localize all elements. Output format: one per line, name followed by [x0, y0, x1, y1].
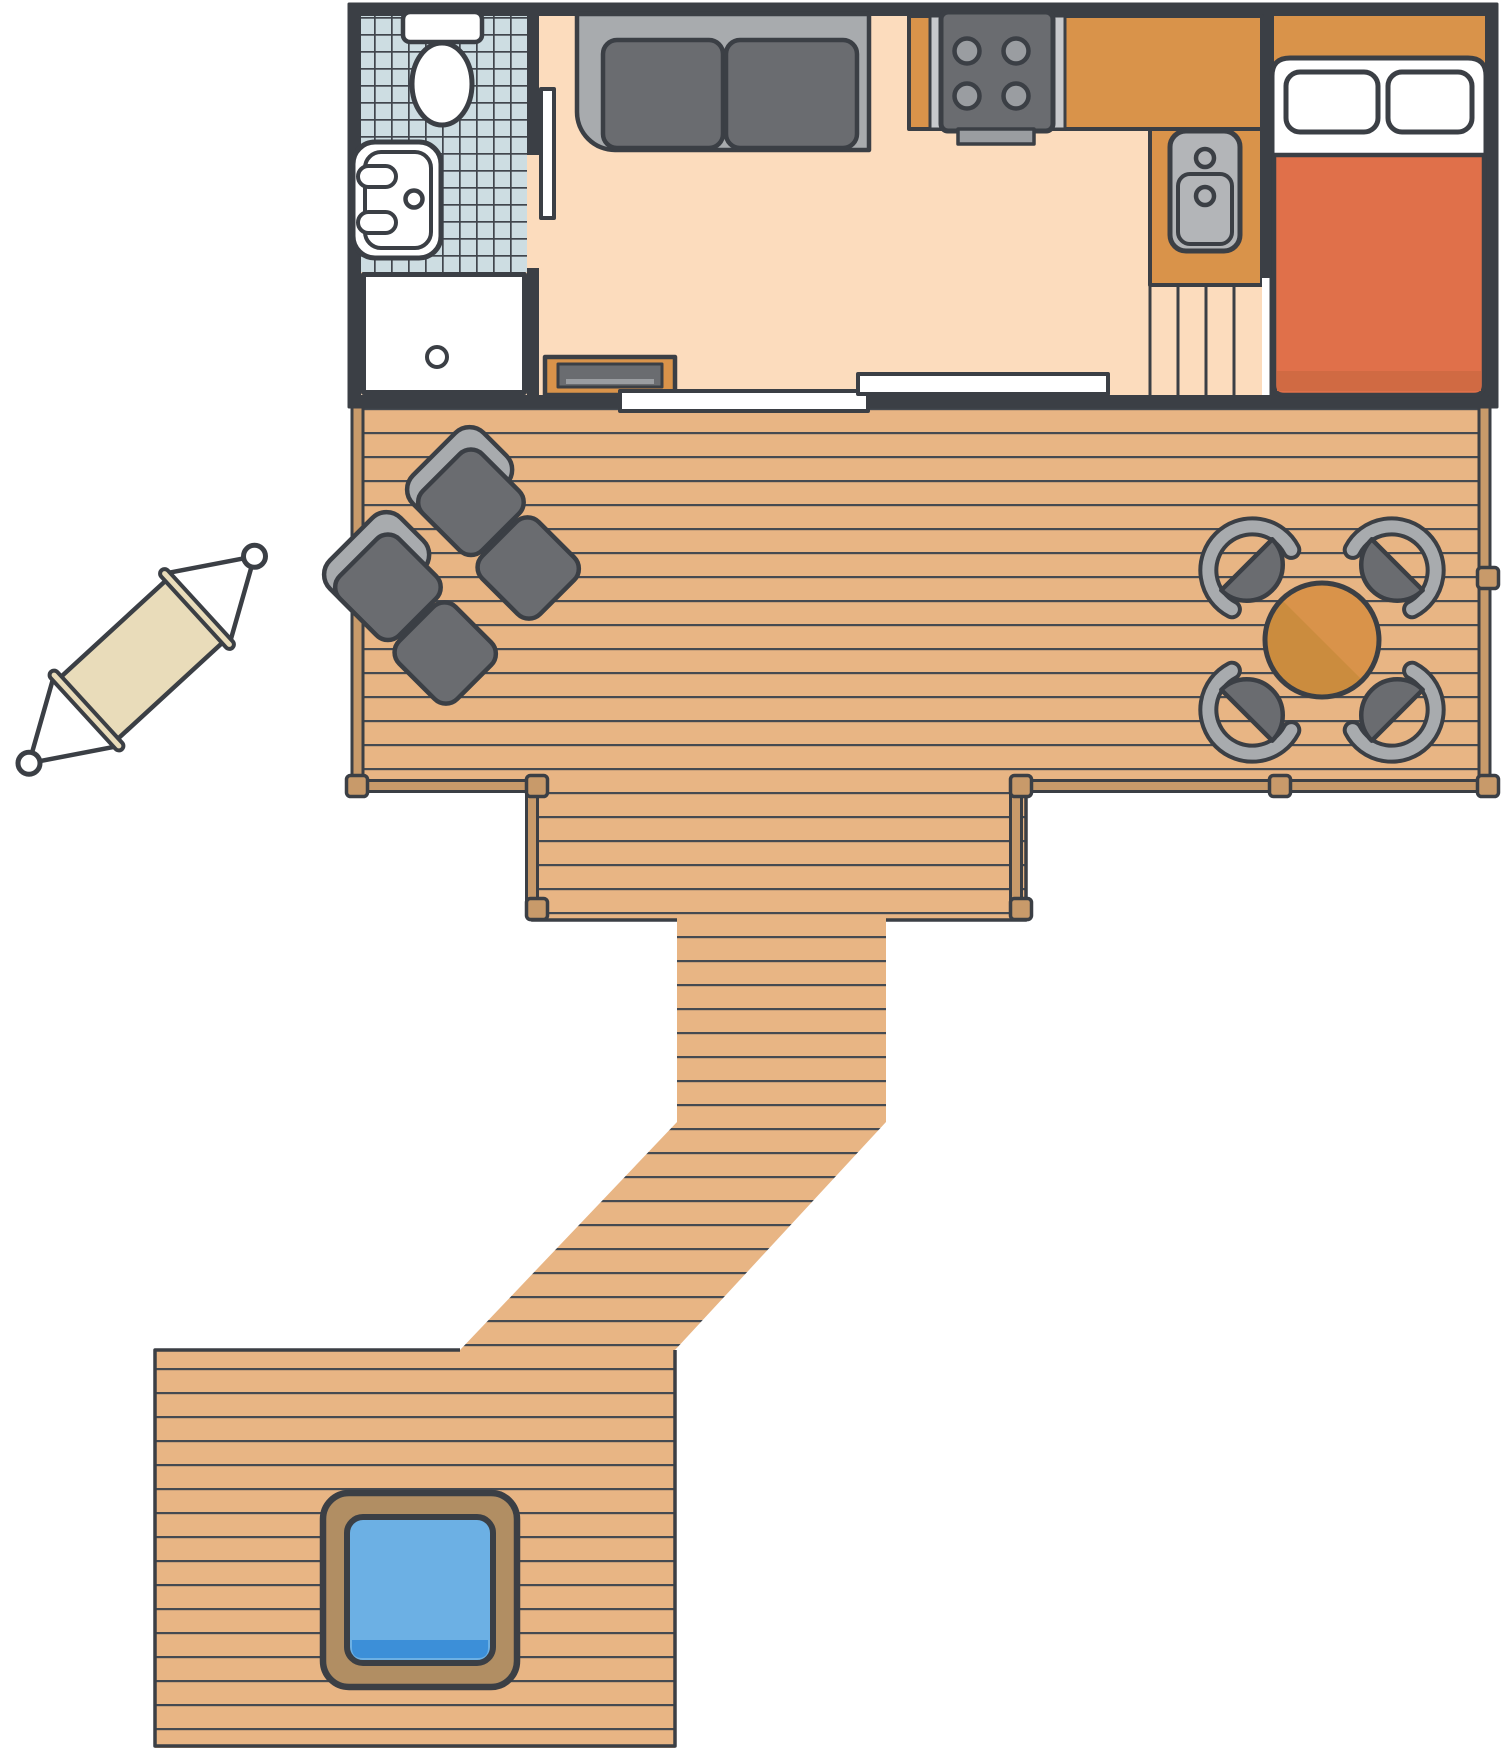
railing-landing-right	[1011, 786, 1022, 912]
media-cabinet-detail	[566, 379, 654, 384]
sink-soap-well	[358, 212, 396, 233]
sliding-door-panel	[620, 391, 868, 411]
deck-post	[527, 899, 548, 920]
floor-plan-canvas	[0, 0, 1512, 1748]
railing-bottom-right	[1021, 781, 1489, 792]
kitchen-sink	[1170, 131, 1240, 251]
stove-burner	[955, 39, 980, 64]
bathroom-sink	[353, 142, 441, 258]
sofa-cushion	[603, 40, 723, 148]
bathroom	[353, 12, 554, 395]
railing-bottom-left	[352, 781, 537, 792]
sink-soap-well	[358, 166, 396, 187]
bathroom-door-leaf	[541, 89, 554, 218]
kitchen-sink-drain	[1196, 187, 1214, 205]
toilet-tank	[403, 12, 482, 42]
stove-burner	[1004, 39, 1029, 64]
hot-tub-water-deep	[352, 1640, 488, 1658]
oven-handle	[958, 129, 1034, 144]
kitchen-sink-basin	[1178, 174, 1232, 244]
bed-blanket	[1274, 155, 1484, 395]
bed-blanket-fold	[1277, 371, 1481, 391]
sliding-door-panel	[858, 374, 1108, 394]
shower	[364, 275, 525, 393]
bed-pillow	[1388, 72, 1472, 132]
stove	[941, 12, 1053, 131]
railing-landing-left	[527, 786, 538, 912]
lower-deck	[155, 1350, 675, 1748]
hammock-ring	[244, 545, 266, 567]
stove-burner	[955, 84, 980, 109]
hammock-fabric	[58, 578, 225, 742]
hammock-ring	[18, 752, 40, 774]
deck-post	[1011, 776, 1032, 797]
hot-tub	[323, 1493, 517, 1687]
bed-pillow	[1286, 72, 1378, 132]
deck-post	[1478, 568, 1499, 589]
deck-post	[527, 776, 548, 797]
walkway-diagonal	[460, 1122, 886, 1350]
walkway	[460, 920, 886, 1350]
deck-post	[1011, 899, 1032, 920]
deck-post	[1270, 776, 1291, 797]
deck-post	[347, 776, 368, 797]
cabin	[349, 4, 1497, 411]
hammock	[18, 545, 266, 774]
deck-post	[1478, 776, 1499, 797]
floor-plan-page	[0, 0, 1512, 1748]
railing-right	[1479, 407, 1490, 786]
sink-faucet-dot	[406, 191, 423, 208]
sofa-cushion	[726, 40, 857, 148]
kitchen-sink-faucet	[1196, 149, 1214, 167]
bedroom	[1262, 16, 1486, 395]
shower-drain	[427, 347, 447, 367]
stove-burner	[1004, 84, 1029, 109]
bathroom-wall-upper	[527, 16, 539, 155]
walkway-straight	[677, 920, 886, 1122]
toilet-bowl	[412, 43, 472, 125]
bathroom-wall-lower	[527, 268, 539, 395]
